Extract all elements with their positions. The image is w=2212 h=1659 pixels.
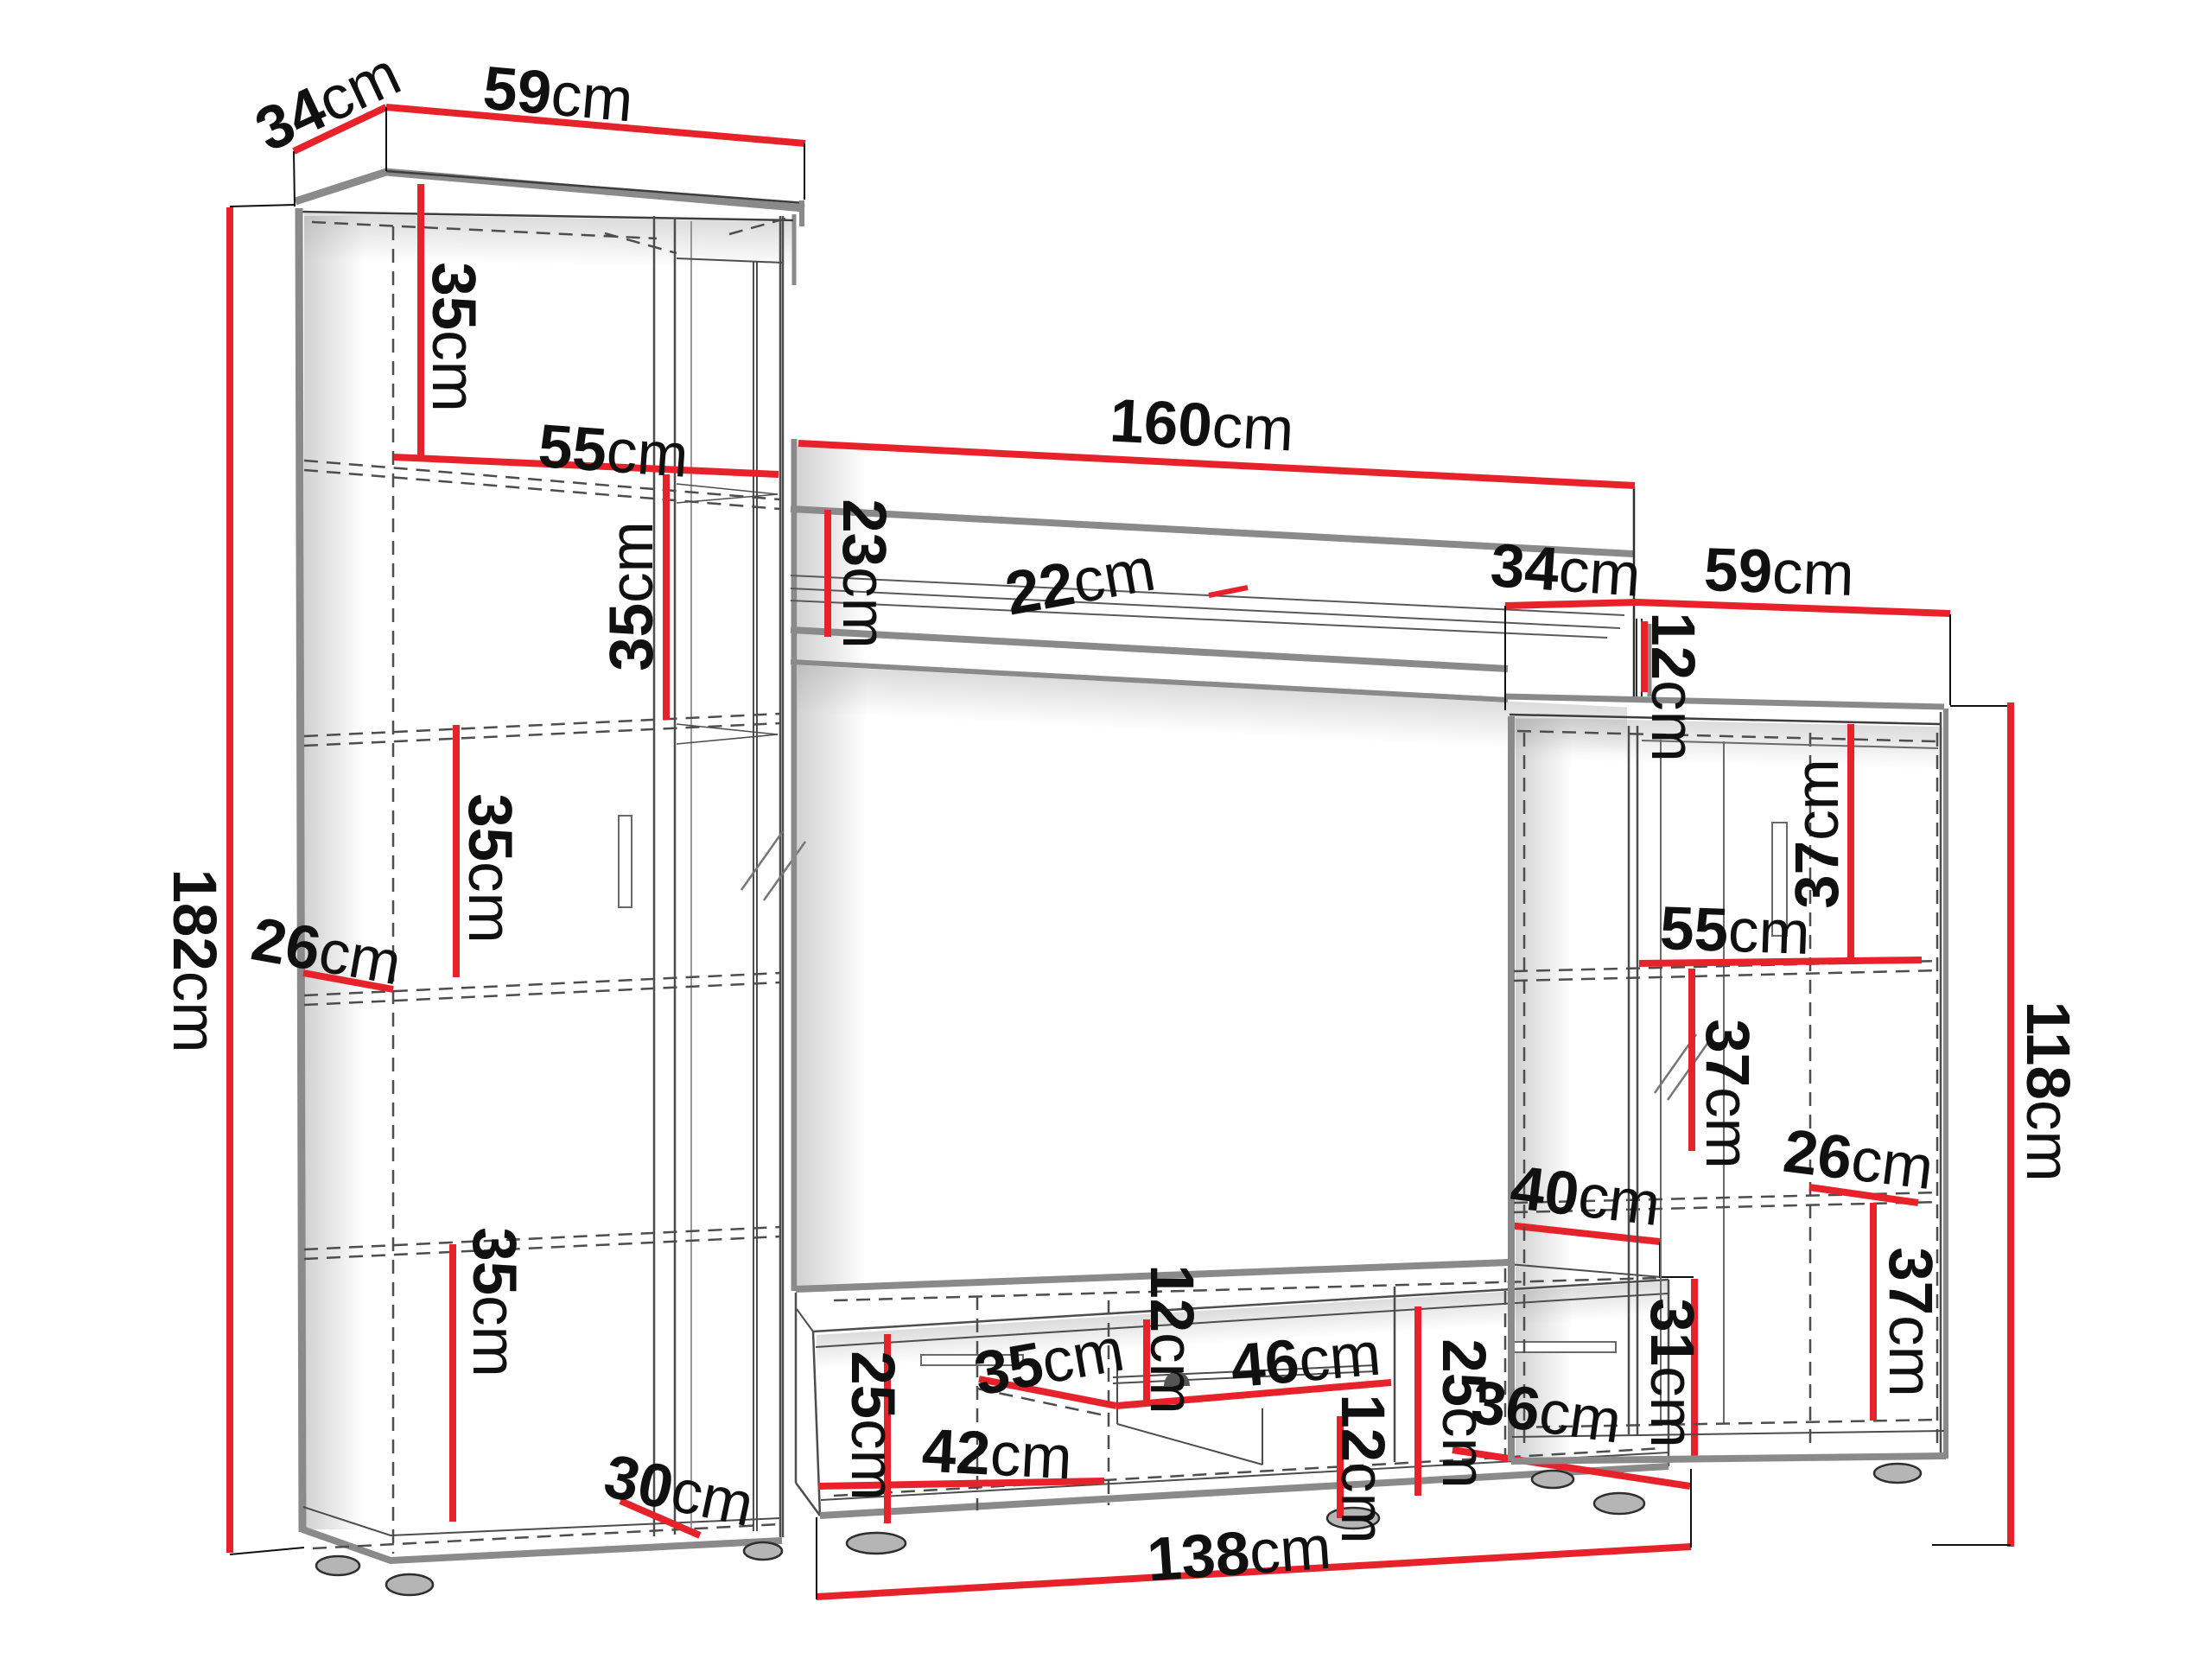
- svg-text:12cm: 12cm: [1137, 1264, 1205, 1414]
- svg-text:12cm: 12cm: [1638, 612, 1707, 762]
- svg-text:31cm: 31cm: [1637, 1298, 1706, 1448]
- svg-text:160cm: 160cm: [1108, 386, 1295, 464]
- svg-text:37cm: 37cm: [1876, 1247, 1944, 1397]
- svg-text:182cm: 182cm: [160, 868, 228, 1052]
- svg-text:42cm: 42cm: [920, 1417, 1074, 1493]
- svg-text:55cm: 55cm: [537, 412, 691, 491]
- svg-text:138cm: 138cm: [1145, 1514, 1333, 1595]
- svg-text:35cm: 35cm: [419, 262, 487, 412]
- svg-text:46cm: 46cm: [1228, 1320, 1383, 1402]
- svg-text:118cm: 118cm: [2013, 1001, 2082, 1181]
- svg-text:37cm: 37cm: [1693, 1019, 1761, 1169]
- svg-text:35cm: 35cm: [455, 793, 524, 944]
- svg-text:59cm: 59cm: [480, 54, 636, 136]
- svg-text:25cm: 25cm: [838, 1351, 906, 1501]
- svg-text:35cm: 35cm: [598, 521, 666, 671]
- svg-text:35cm: 35cm: [460, 1227, 528, 1377]
- svg-text:12cm: 12cm: [1328, 1394, 1396, 1544]
- svg-text:55cm: 55cm: [1659, 894, 1811, 968]
- svg-text:37cm: 37cm: [1783, 759, 1852, 909]
- svg-text:23cm: 23cm: [829, 499, 898, 649]
- svg-text:59cm: 59cm: [1703, 536, 1855, 609]
- svg-text:34cm: 34cm: [1489, 531, 1643, 610]
